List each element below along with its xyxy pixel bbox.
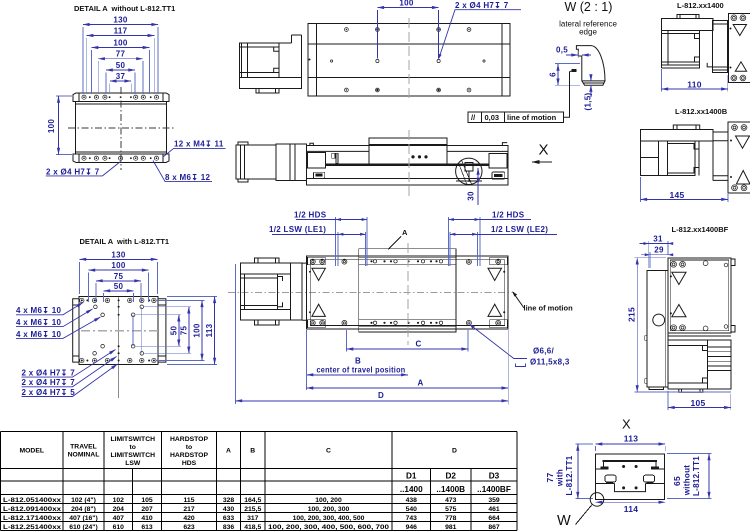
svg-text:117: 117 bbox=[114, 27, 128, 36]
svg-text:50: 50 bbox=[116, 61, 126, 70]
svg-text:100, 200, 300: 100, 200, 300 bbox=[308, 506, 350, 513]
svg-text:NOMINAL: NOMINAL bbox=[68, 452, 100, 459]
svg-text:100: 100 bbox=[47, 119, 56, 133]
svg-text:217: 217 bbox=[183, 506, 195, 513]
svg-text:610: 610 bbox=[113, 524, 125, 531]
svg-text:2 x Ø4 H7↧ 7: 2 x Ø4 H7↧ 7 bbox=[455, 1, 509, 10]
svg-text:613: 613 bbox=[141, 524, 153, 531]
svg-text:0,5: 0,5 bbox=[556, 46, 568, 55]
svg-text:743: 743 bbox=[406, 515, 418, 522]
svg-text:540: 540 bbox=[406, 506, 418, 513]
svg-text:D: D bbox=[378, 391, 384, 400]
svg-text:610 (24"): 610 (24") bbox=[69, 524, 98, 531]
svg-text:C: C bbox=[416, 340, 422, 349]
svg-text:77: 77 bbox=[116, 50, 126, 59]
svg-text:Ø6,6/: Ø6,6/ bbox=[533, 347, 555, 356]
svg-text:215: 215 bbox=[627, 307, 637, 322]
svg-text:37: 37 bbox=[116, 72, 126, 81]
svg-text:204 (8"): 204 (8") bbox=[71, 506, 96, 513]
svg-text:145: 145 bbox=[669, 190, 684, 200]
svg-text:981: 981 bbox=[445, 524, 457, 531]
svg-text:HARDSTOP: HARDSTOP bbox=[170, 436, 208, 443]
svg-text:164,5: 164,5 bbox=[244, 497, 261, 504]
svg-text:L-812.251400xx: L-812.251400xx bbox=[3, 524, 61, 531]
svg-text:Ø11,5x8,3: Ø11,5x8,3 bbox=[530, 358, 570, 367]
svg-text:100, 200, 300, 400, 500: 100, 200, 300, 400, 500 bbox=[293, 515, 365, 522]
svg-text:4 x M6↧ 10: 4 x M6↧ 10 bbox=[16, 318, 62, 327]
svg-text:to: to bbox=[186, 444, 192, 451]
svg-text:1/2 HDS: 1/2 HDS bbox=[492, 211, 525, 220]
svg-text:867: 867 bbox=[488, 524, 500, 531]
svg-text:L-812.TT1: L-812.TT1 bbox=[692, 456, 701, 496]
svg-text:50: 50 bbox=[114, 282, 124, 291]
svg-text:..1400BF: ..1400BF bbox=[477, 485, 511, 494]
svg-text:C: C bbox=[326, 448, 331, 455]
svg-text:0,03: 0,03 bbox=[485, 113, 500, 122]
svg-text:D: D bbox=[452, 448, 457, 455]
svg-text:4 x M6↧ 10: 4 x M6↧ 10 bbox=[16, 330, 62, 339]
svg-text:130: 130 bbox=[113, 16, 127, 25]
svg-text:L-812.xx1400: L-812.xx1400 bbox=[677, 1, 724, 10]
svg-text:100: 100 bbox=[399, 0, 413, 8]
svg-text:102: 102 bbox=[113, 497, 125, 504]
svg-text:105: 105 bbox=[141, 497, 153, 504]
svg-text:D2: D2 bbox=[446, 471, 457, 480]
svg-text:LIMITSWITCH: LIMITSWITCH bbox=[110, 436, 155, 443]
svg-text:L-812.051400xx: L-812.051400xx bbox=[3, 497, 61, 504]
svg-text:L-812.171400xx: L-812.171400xx bbox=[3, 515, 61, 522]
svg-text:LSW: LSW bbox=[125, 460, 141, 467]
svg-text:D3: D3 bbox=[489, 471, 500, 480]
svg-text:L-812.TT1: L-812.TT1 bbox=[565, 455, 574, 495]
svg-text:line of motion: line of motion bbox=[507, 113, 557, 122]
svg-text:D1: D1 bbox=[406, 471, 417, 480]
svg-text:102 (4"): 102 (4") bbox=[71, 497, 96, 504]
svg-text:623: 623 bbox=[183, 524, 195, 531]
svg-text:DETAIL A with L-812.TT1: DETAIL A with L-812.TT1 bbox=[80, 237, 170, 246]
svg-text:A: A bbox=[418, 379, 424, 388]
svg-text:A: A bbox=[402, 228, 408, 237]
svg-text:HDS: HDS bbox=[182, 460, 197, 467]
svg-text:100, 200: 100, 200 bbox=[315, 497, 342, 504]
svg-text:317: 317 bbox=[247, 515, 259, 522]
svg-text:2 x Ø4 H7↧ 7: 2 x Ø4 H7↧ 7 bbox=[22, 378, 76, 387]
svg-text:359: 359 bbox=[488, 497, 500, 504]
svg-text:W (2 : 1): W (2 : 1) bbox=[565, 0, 613, 14]
svg-text:130: 130 bbox=[111, 250, 125, 259]
svg-text:113: 113 bbox=[624, 434, 639, 444]
svg-text:with: with bbox=[556, 469, 565, 487]
svg-text:MODEL: MODEL bbox=[19, 448, 44, 455]
svg-text:center of travel position: center of travel position bbox=[317, 366, 406, 375]
svg-text:633: 633 bbox=[223, 515, 235, 522]
svg-text:1/2 HDS: 1/2 HDS bbox=[294, 211, 327, 220]
svg-text:(1,5): (1,5) bbox=[584, 92, 593, 110]
svg-text:W: W bbox=[557, 513, 571, 529]
svg-text:420: 420 bbox=[183, 515, 195, 522]
svg-text:L-812.xx1400B: L-812.xx1400B bbox=[675, 107, 728, 116]
svg-text:8 x M6↧ 12: 8 x M6↧ 12 bbox=[165, 173, 211, 182]
svg-text:L-812.xx1400BF: L-812.xx1400BF bbox=[672, 225, 729, 234]
svg-text:4 x M6↧ 10: 4 x M6↧ 10 bbox=[16, 306, 62, 315]
svg-text:410: 410 bbox=[141, 515, 153, 522]
svg-text:2 x Ø4 H7↧ 7: 2 x Ø4 H7↧ 7 bbox=[22, 369, 76, 378]
svg-text:2 x Ø4 H7↧ 5: 2 x Ø4 H7↧ 5 bbox=[22, 388, 76, 397]
svg-text:418,5: 418,5 bbox=[244, 524, 261, 531]
svg-text:778: 778 bbox=[445, 515, 457, 522]
svg-text:215,5: 215,5 bbox=[244, 506, 261, 513]
svg-text:1/2 LSW (LE1): 1/2 LSW (LE1) bbox=[269, 225, 326, 234]
svg-text:DETAIL A without L-812.TT1: DETAIL A without L-812.TT1 bbox=[74, 4, 175, 13]
svg-text:TRAVEL: TRAVEL bbox=[70, 444, 97, 451]
svg-text:100: 100 bbox=[111, 261, 125, 270]
svg-text:B: B bbox=[355, 357, 361, 366]
svg-text:without: without bbox=[683, 465, 692, 497]
svg-text:407: 407 bbox=[113, 515, 125, 522]
svg-text:946: 946 bbox=[406, 524, 418, 531]
svg-text:100: 100 bbox=[113, 39, 127, 48]
svg-text:B: B bbox=[250, 448, 255, 455]
svg-text:1/2 LSW (LE2): 1/2 LSW (LE2) bbox=[491, 225, 548, 234]
svg-text:to: to bbox=[130, 444, 136, 451]
svg-text:473: 473 bbox=[445, 497, 457, 504]
svg-text:113: 113 bbox=[205, 323, 214, 337]
svg-text:31: 31 bbox=[653, 235, 663, 244]
svg-text:105: 105 bbox=[690, 398, 705, 408]
svg-text:115: 115 bbox=[184, 497, 195, 504]
svg-text:2 x Ø4 H7↧ 7: 2 x Ø4 H7↧ 7 bbox=[46, 167, 100, 176]
svg-text:A: A bbox=[226, 448, 231, 455]
svg-text:LIMITSWITCH: LIMITSWITCH bbox=[110, 452, 155, 459]
svg-text:50: 50 bbox=[169, 326, 178, 336]
svg-text:664: 664 bbox=[488, 515, 500, 522]
svg-text:29: 29 bbox=[654, 246, 664, 255]
svg-text:77: 77 bbox=[545, 472, 555, 482]
svg-text:line of motion: line of motion bbox=[524, 304, 574, 313]
svg-text:HARDSTOP: HARDSTOP bbox=[170, 452, 208, 459]
svg-text:575: 575 bbox=[445, 506, 457, 513]
svg-text:X: X bbox=[622, 417, 631, 432]
svg-text:12 x M4↧ 11: 12 x M4↧ 11 bbox=[174, 140, 224, 149]
svg-text:461: 461 bbox=[488, 506, 500, 513]
svg-text:L-812.091400xx: L-812.091400xx bbox=[3, 506, 61, 513]
svg-text:110: 110 bbox=[687, 80, 702, 90]
svg-text:..1400: ..1400 bbox=[400, 485, 423, 494]
svg-text:207: 207 bbox=[141, 506, 153, 513]
svg-text:438: 438 bbox=[406, 497, 418, 504]
svg-text:114: 114 bbox=[624, 504, 639, 514]
svg-text:328: 328 bbox=[223, 497, 235, 504]
svg-text:75: 75 bbox=[114, 272, 124, 281]
svg-text:836: 836 bbox=[223, 524, 235, 531]
svg-text:X: X bbox=[539, 142, 549, 159]
svg-text:edge: edge bbox=[579, 28, 597, 37]
svg-text:65: 65 bbox=[672, 476, 682, 486]
svg-text:407 (16"): 407 (16") bbox=[69, 515, 98, 522]
svg-text:30: 30 bbox=[467, 191, 476, 201]
svg-text:100, 200, 300, 400, 500, 600,: 100, 200, 300, 400, 500, 600, 700 bbox=[268, 524, 389, 531]
svg-text:430: 430 bbox=[223, 506, 235, 513]
svg-text:6: 6 bbox=[549, 72, 558, 77]
svg-text:204: 204 bbox=[113, 506, 125, 513]
svg-text:..1400B: ..1400B bbox=[436, 485, 465, 494]
svg-text:100: 100 bbox=[193, 323, 202, 337]
svg-text:75: 75 bbox=[179, 326, 188, 336]
